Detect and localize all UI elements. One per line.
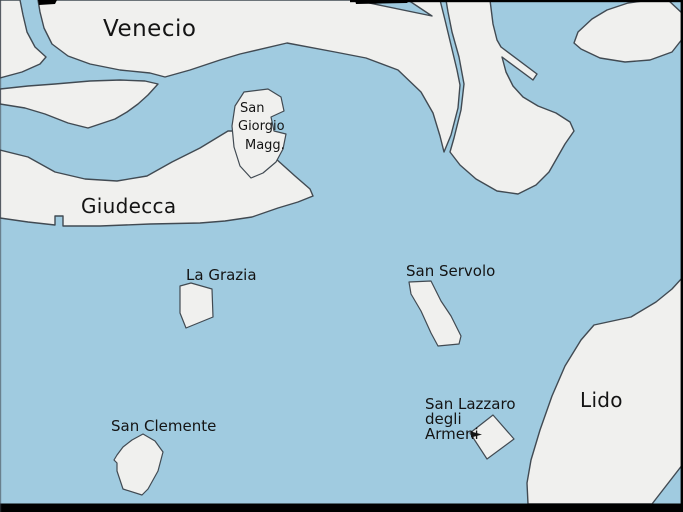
label-venecio: Venecio (103, 16, 196, 42)
map-border-top (350, 0, 683, 2)
label-lido: Lido (580, 388, 623, 412)
label-san-giorgio-line3: Magg. (245, 138, 285, 153)
label-san-giorgio-line1: San (240, 101, 264, 116)
label-giudecca: Giudecca (81, 194, 176, 218)
map-canvas: Venecio San Giorgio Magg. Giudecca La Gr… (0, 0, 683, 512)
label-la-grazia: La Grazia (186, 266, 257, 284)
map-border-bottom (0, 504, 683, 512)
label-san-servolo: San Servolo (406, 262, 495, 280)
label-san-giorgio-line2: Giorgio (238, 119, 285, 134)
venice-lagoon-map: Venecio San Giorgio Magg. Giudecca La Gr… (0, 0, 683, 512)
map-border-left (0, 0, 1, 512)
label-san-lazzaro-line3: Armeni (425, 425, 479, 443)
label-san-clemente: San Clemente (111, 417, 216, 435)
